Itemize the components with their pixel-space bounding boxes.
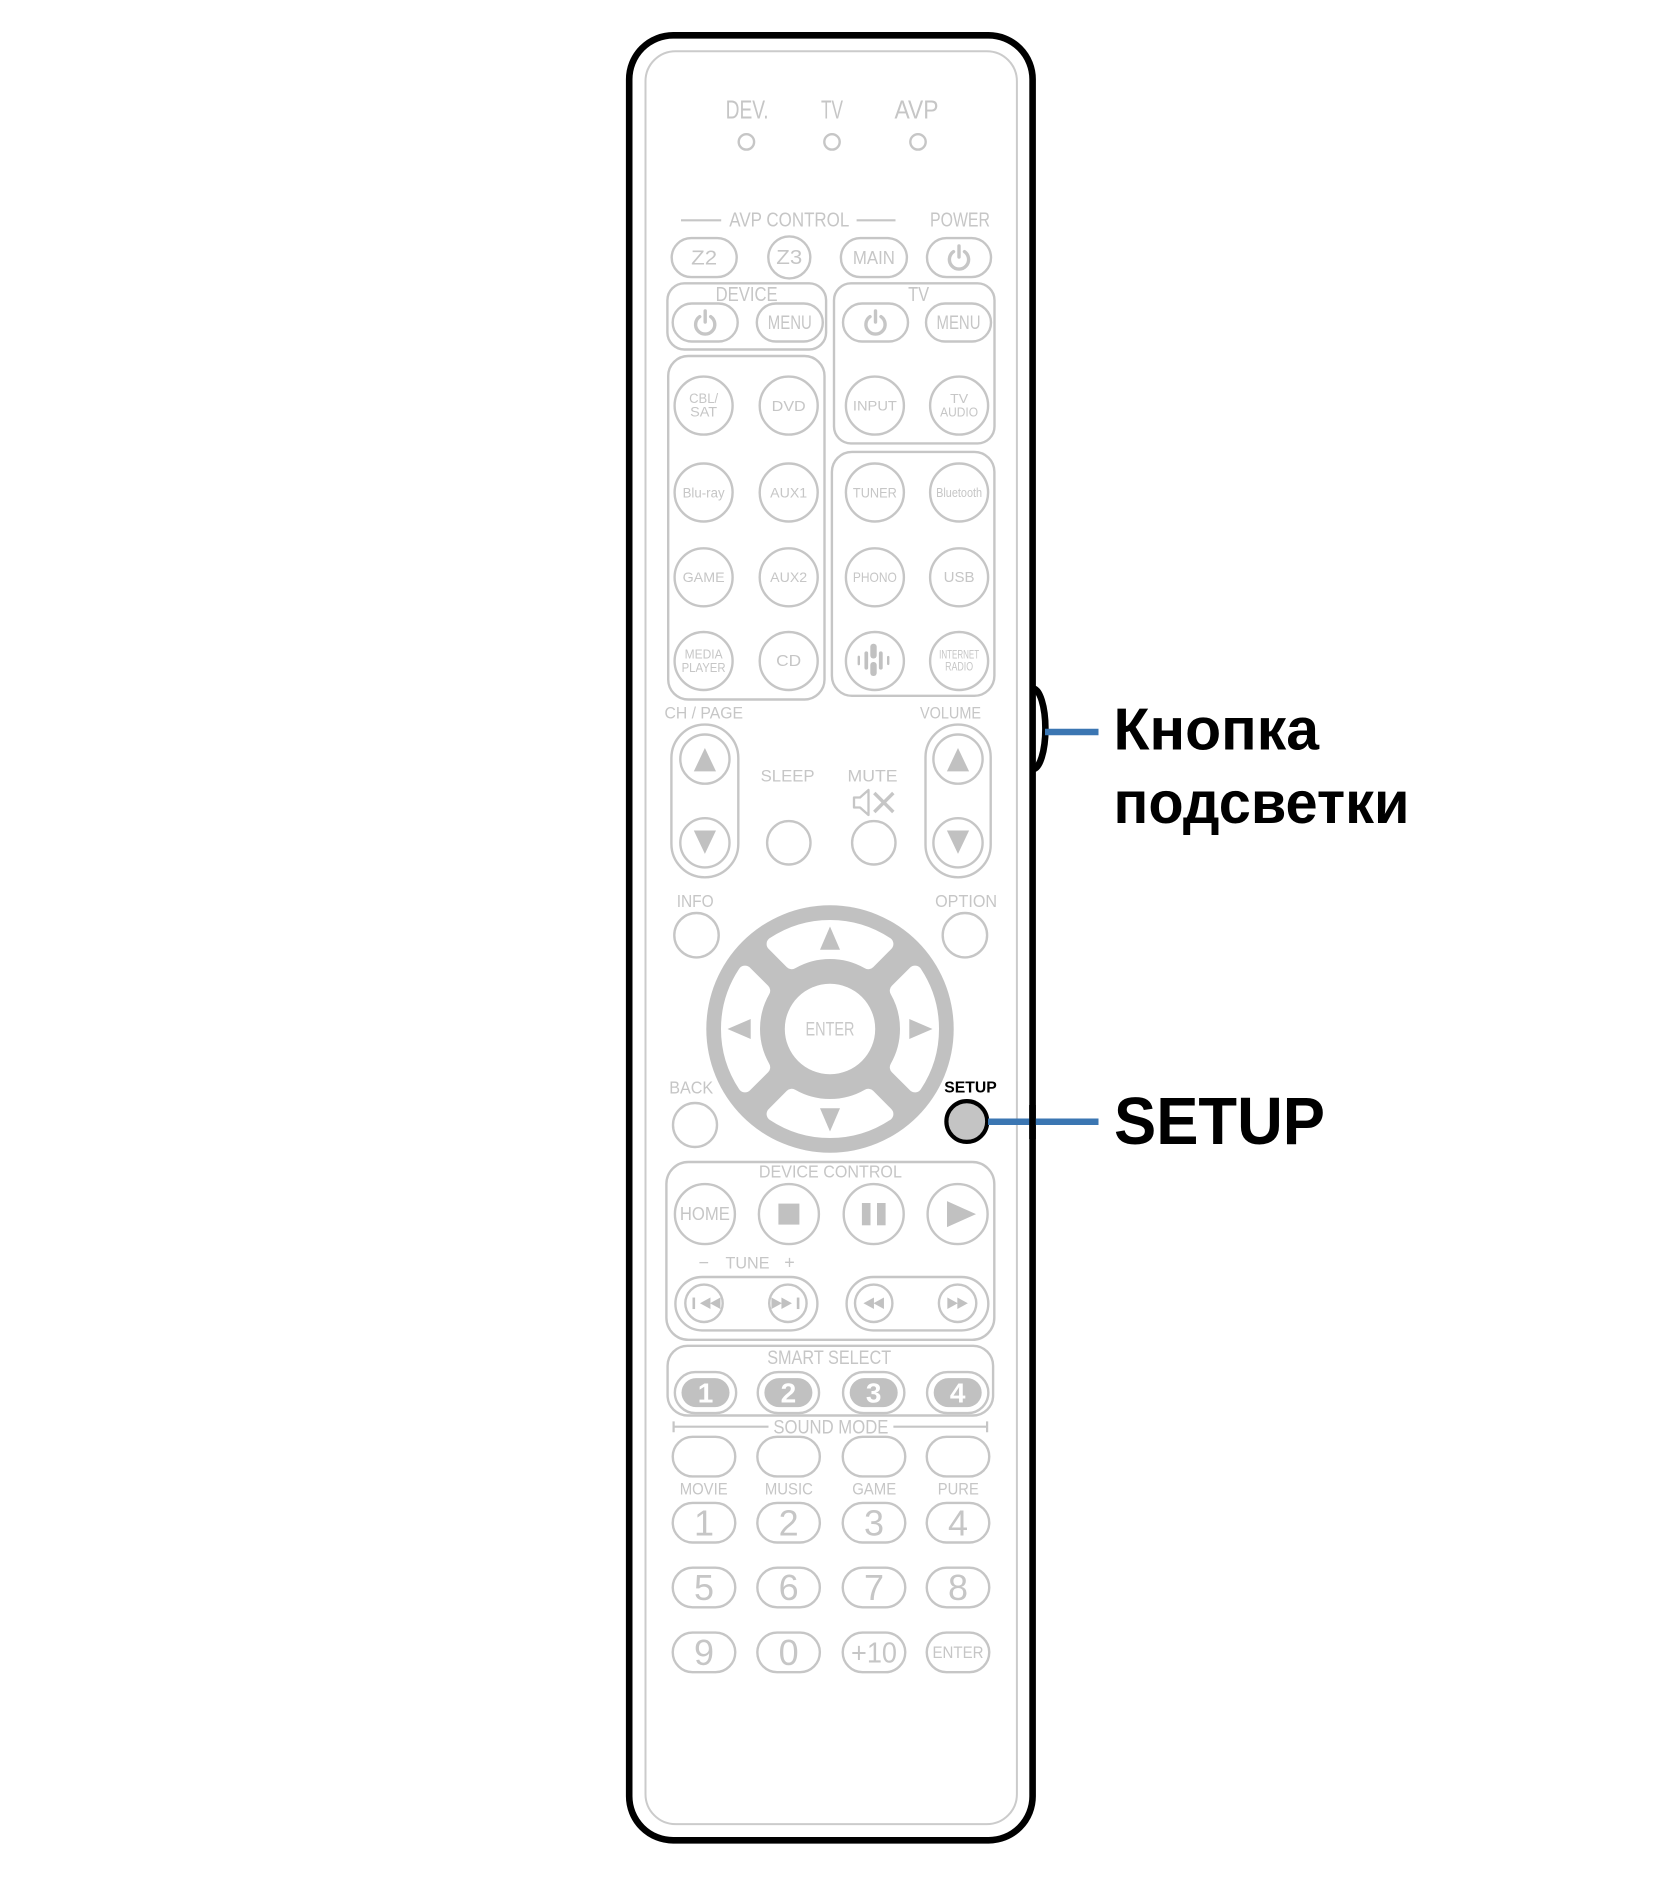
svg-text:TUNER: TUNER (853, 484, 897, 500)
svg-text:4: 4 (948, 1502, 968, 1543)
svg-text:ENTER: ENTER (933, 1644, 984, 1662)
svg-text:USB: USB (944, 570, 975, 586)
svg-text:OPTION: OPTION (935, 891, 997, 911)
svg-text:0: 0 (779, 1632, 799, 1673)
svg-text:ENTER: ENTER (806, 1020, 855, 1041)
svg-text:SETUP: SETUP (1114, 1084, 1325, 1159)
svg-text:DEVICE CONTROL: DEVICE CONTROL (759, 1162, 902, 1182)
svg-text:CH / PAGE: CH / PAGE (665, 705, 744, 723)
svg-text:CD: CD (776, 653, 801, 670)
svg-text:DEVICE: DEVICE (716, 284, 778, 306)
svg-text:SOUND MODE: SOUND MODE (773, 1417, 888, 1438)
svg-text:PURE: PURE (938, 1481, 979, 1499)
svg-text:Bluetooth: Bluetooth (936, 485, 982, 500)
svg-text:GAME: GAME (683, 569, 725, 585)
svg-text:AUDIO: AUDIO (940, 405, 978, 420)
svg-text:RADIO: RADIO (945, 659, 973, 673)
svg-text:DVD: DVD (772, 398, 806, 415)
svg-text:DEV.: DEV. (726, 94, 769, 124)
svg-text:TUNE: TUNE (726, 1255, 770, 1273)
svg-text:MENU: MENU (768, 313, 812, 334)
svg-text:−: − (698, 1253, 709, 1273)
svg-text:1: 1 (694, 1502, 714, 1543)
svg-text:HOME: HOME (680, 1204, 730, 1224)
svg-text:MUSIC: MUSIC (765, 1481, 813, 1499)
svg-text:PLAYER: PLAYER (682, 660, 726, 675)
svg-text:2: 2 (779, 1502, 799, 1543)
svg-text:GAME: GAME (852, 1481, 896, 1499)
svg-text:подсветки: подсветки (1114, 770, 1410, 836)
svg-text:+: + (784, 1253, 795, 1273)
svg-text:Z3: Z3 (776, 247, 802, 269)
svg-text:+10: +10 (851, 1637, 897, 1669)
svg-text:SLEEP: SLEEP (761, 767, 815, 785)
svg-text:6: 6 (779, 1567, 799, 1608)
svg-text:BACK: BACK (669, 1078, 713, 1098)
svg-text:8: 8 (948, 1567, 968, 1608)
svg-text:1: 1 (698, 1378, 714, 1409)
svg-text:POWER: POWER (930, 210, 990, 232)
svg-text:2: 2 (781, 1378, 797, 1409)
svg-text:SMART SELECT: SMART SELECT (767, 1348, 891, 1369)
svg-text:MENU: MENU (937, 313, 981, 334)
svg-text:SETUP: SETUP (944, 1079, 997, 1096)
svg-text:TV: TV (821, 94, 843, 124)
svg-text:INFO: INFO (677, 891, 714, 911)
svg-text:PHONO: PHONO (853, 569, 897, 585)
svg-text:MOVIE: MOVIE (680, 1481, 728, 1499)
svg-text:AVP: AVP (895, 94, 939, 124)
svg-text:4: 4 (950, 1378, 966, 1409)
svg-text:AUX2: AUX2 (770, 569, 807, 585)
svg-text:Z2: Z2 (691, 247, 717, 269)
svg-text:VOLUME: VOLUME (920, 705, 981, 723)
svg-text:9: 9 (694, 1632, 714, 1673)
svg-text:7: 7 (864, 1567, 884, 1608)
svg-text:5: 5 (694, 1567, 714, 1608)
svg-text:3: 3 (864, 1502, 884, 1543)
svg-text:INPUT: INPUT (853, 398, 897, 414)
svg-text:SAT: SAT (690, 405, 717, 420)
svg-text:AVP CONTROL: AVP CONTROL (729, 210, 849, 232)
svg-text:Кнопка: Кнопка (1114, 697, 1321, 763)
svg-text:AUX1: AUX1 (770, 484, 807, 500)
svg-text:TV: TV (908, 284, 930, 306)
svg-text:Blu-ray: Blu-ray (683, 485, 725, 500)
svg-text:MUTE: MUTE (848, 767, 898, 785)
svg-text:3: 3 (866, 1378, 882, 1409)
svg-text:MAIN: MAIN (853, 248, 895, 268)
